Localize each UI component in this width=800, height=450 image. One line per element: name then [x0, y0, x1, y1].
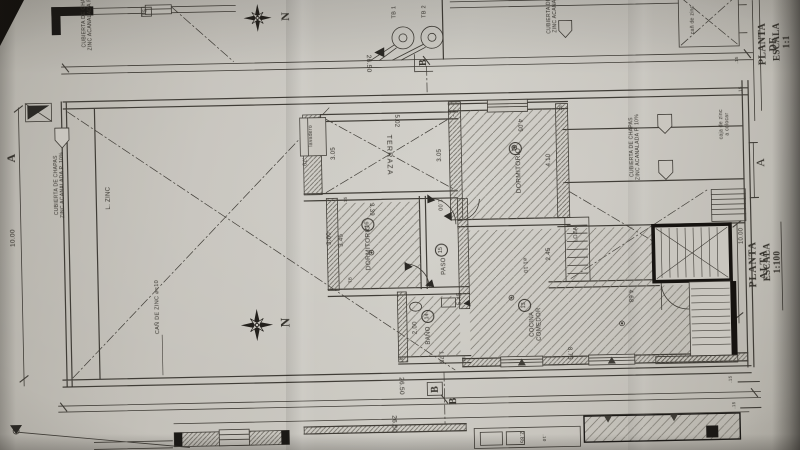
north-label-top: N: [279, 12, 293, 21]
dim-15-b: .15: [343, 197, 348, 204]
room-number-14: 14: [421, 310, 434, 323]
label-tb-small: TB: [347, 277, 352, 283]
dim-1-75: 1.75: [437, 351, 443, 363]
dim-15-a: .15: [558, 105, 563, 112]
dim-26-50-top: 26.50: [365, 55, 373, 73]
dim-8-75: 8.75: [565, 347, 572, 360]
title-escala-1100: ESCALA 1:100: [761, 243, 782, 281]
label-caja-zinc: caja de zinc a colocar: [719, 109, 731, 139]
room-number-15: 15: [435, 244, 448, 257]
room-dormitorio-16: DORMITORIO: [364, 225, 372, 270]
dim-3-60: 3.60: [327, 232, 334, 245]
dim-4-10: 4.10: [546, 153, 553, 166]
dim-15-e: .15: [734, 56, 739, 63]
section-b-bottom-1: B: [430, 386, 441, 393]
dim-dia-1-10: ⌀1.10: [522, 258, 528, 274]
dim-15-g: .15: [728, 375, 733, 382]
label-ts: TS: [144, 9, 150, 16]
dim-3-05-dorm19: 3.05: [437, 149, 444, 162]
dim-3-39: 3.39: [367, 203, 374, 216]
label-lavadero: lavadero: [309, 125, 315, 147]
plan-labels: PLANTA ALTAESCALA 1:100PLANTA DEESCALA 1…: [0, 0, 800, 450]
label-cubierta-right: CUBIERTA DE CHAPAS ZINC ACANALADA P. 10%: [629, 114, 642, 180]
dim-4-68: 4.68: [626, 290, 633, 303]
room-terraza: TERRAZA: [384, 135, 393, 176]
dim-15-f: .15: [738, 86, 743, 93]
dim-15-c: .15: [399, 357, 404, 364]
room-cocina-comedor: COCINA COMEDOR: [529, 307, 543, 341]
dim-0-70: .70: [300, 158, 306, 167]
dim-5-02: 5.02: [392, 115, 399, 128]
dim-2-00: 2.00: [413, 321, 420, 334]
north-label-mid: N: [279, 317, 294, 327]
section-b-bottom-2: B: [448, 397, 459, 404]
dim-26-50-bottom-1: 26.50: [397, 377, 405, 395]
section-a-right: A: [754, 158, 768, 167]
dim-15-h: .15: [731, 401, 736, 408]
room-number-16: 16: [361, 218, 374, 231]
dim-1-00: 1.00: [436, 199, 442, 211]
blueprint-photo: PLANTA ALTAESCALA 1:100PLANTA DEESCALA 1…: [0, 0, 800, 450]
label-tb-1: TB 1: [391, 6, 397, 19]
dim-10-00-left: 10.00: [9, 229, 17, 247]
label-loza: LOZA: [573, 226, 579, 242]
label-cubierta-top-left: CUBIERTA DE CHAPAS ZINC ACANALADA P. 10%: [81, 0, 94, 51]
dim-10-00-stairs: 10.00: [739, 228, 746, 245]
label-cubierta-left: CUBIERTA DE CHAPAS ZINC ACANALADA P. 10%: [54, 152, 67, 218]
dim-5-45: 5.45: [457, 292, 464, 305]
dim-2-85: 2.85: [518, 431, 524, 443]
label-tb-2: TB 2: [421, 5, 427, 18]
label-l-zinc: L. ZINC: [106, 187, 113, 210]
room-bano: BAÑO: [426, 326, 433, 344]
title-escala-11: ESCALA 1:1: [771, 23, 792, 61]
dim-0-10: .10: [542, 434, 547, 441]
dim-2-45: 2.45: [546, 247, 553, 260]
dim-15-d: .15: [461, 356, 466, 363]
dim-4-05: 4.05: [515, 119, 522, 132]
label-can-de-zinc: CAÑ DE ZINC ⌀=10: [154, 280, 161, 334]
dim-26-50-bottom-2: 26.50: [390, 415, 398, 433]
room-paso: PASO: [441, 257, 448, 275]
label-can-zinc-top: cañ de zinc: [691, 5, 697, 34]
section-a-left: A: [5, 153, 19, 162]
dim-3-45: 3.45: [339, 234, 346, 247]
section-b-top: B: [418, 59, 429, 66]
label-cubierta-top-right: CUBIERTA DE C ZINC ACANALA: [546, 0, 558, 34]
dim-3-05-terraza: 3.05: [331, 147, 338, 160]
